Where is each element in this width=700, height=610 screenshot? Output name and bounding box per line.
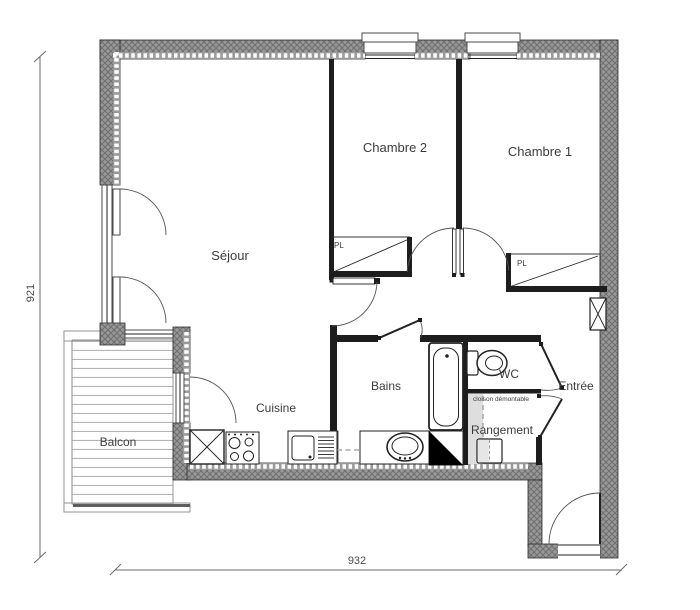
wall-sejour-bains xyxy=(330,325,337,431)
exterior-walls xyxy=(100,40,618,558)
partition-label: cloison démontable xyxy=(473,396,529,403)
room-label-wc: WC xyxy=(499,367,519,381)
technical-shaft-right xyxy=(590,298,606,330)
window-chambre1 xyxy=(465,33,520,59)
technical-shaft xyxy=(429,431,463,465)
bathtub-drain xyxy=(445,354,449,358)
bathtub xyxy=(429,343,463,430)
wall-partition-wc-rangement xyxy=(468,389,541,394)
door-bains xyxy=(377,318,422,340)
balcony-rail-left xyxy=(64,331,72,512)
floorplan-svg: Séjour Chambre 2 Chambre 1 Cuisine Bains… xyxy=(0,0,700,610)
kitchen-sink xyxy=(288,431,337,464)
wall-wc-top xyxy=(420,335,541,342)
wall-left-balcony-pier xyxy=(100,323,125,345)
entry-door-arc xyxy=(549,493,600,544)
window-balcony-sejour xyxy=(125,330,173,338)
closet-label-chambre2: PL xyxy=(334,241,344,250)
balcony-sill-top xyxy=(64,331,102,341)
dimension-height: 921 xyxy=(25,284,37,302)
wall-rangement-stub xyxy=(536,437,542,465)
closet1-bottom xyxy=(506,286,607,292)
door-rangement xyxy=(537,394,562,439)
bathroom-sink xyxy=(337,431,429,464)
wall-chambre2-chambre1 xyxy=(456,59,462,229)
room-label-cuisine: Cuisine xyxy=(256,401,296,415)
kitchen-appliance-x xyxy=(190,430,224,464)
insulation-liner xyxy=(113,52,600,467)
room-label-chambre2: Chambre 2 xyxy=(363,140,427,155)
balcony-deck xyxy=(72,340,173,504)
french-window-sejour xyxy=(102,185,166,323)
floorplan-page: Séjour Chambre 2 Chambre 1 Cuisine Bains… xyxy=(0,0,700,610)
stove xyxy=(226,432,259,464)
closet2-jamb xyxy=(407,237,412,277)
door-chambre2 xyxy=(330,278,381,326)
room-label-balcon: Balcon xyxy=(100,435,137,449)
room-label-bains: Bains xyxy=(371,379,401,393)
closet-label-chambre1: PL xyxy=(517,259,527,268)
wall-step-vertical xyxy=(528,480,542,546)
balcony xyxy=(64,331,190,512)
room-label-chambre1: Chambre 1 xyxy=(508,144,572,159)
window-chambre2 xyxy=(362,33,418,59)
doors-chambres xyxy=(405,228,511,277)
room-label-rangement: Rangement xyxy=(471,423,534,437)
wall-bottom-entry xyxy=(528,544,560,558)
room-label-entree: Entrée xyxy=(558,379,594,393)
wall-bains-top xyxy=(337,335,378,342)
kitchen-fixtures xyxy=(190,430,337,464)
room-label-sejour: Séjour xyxy=(211,248,249,263)
dimension-width: 932 xyxy=(348,555,366,567)
